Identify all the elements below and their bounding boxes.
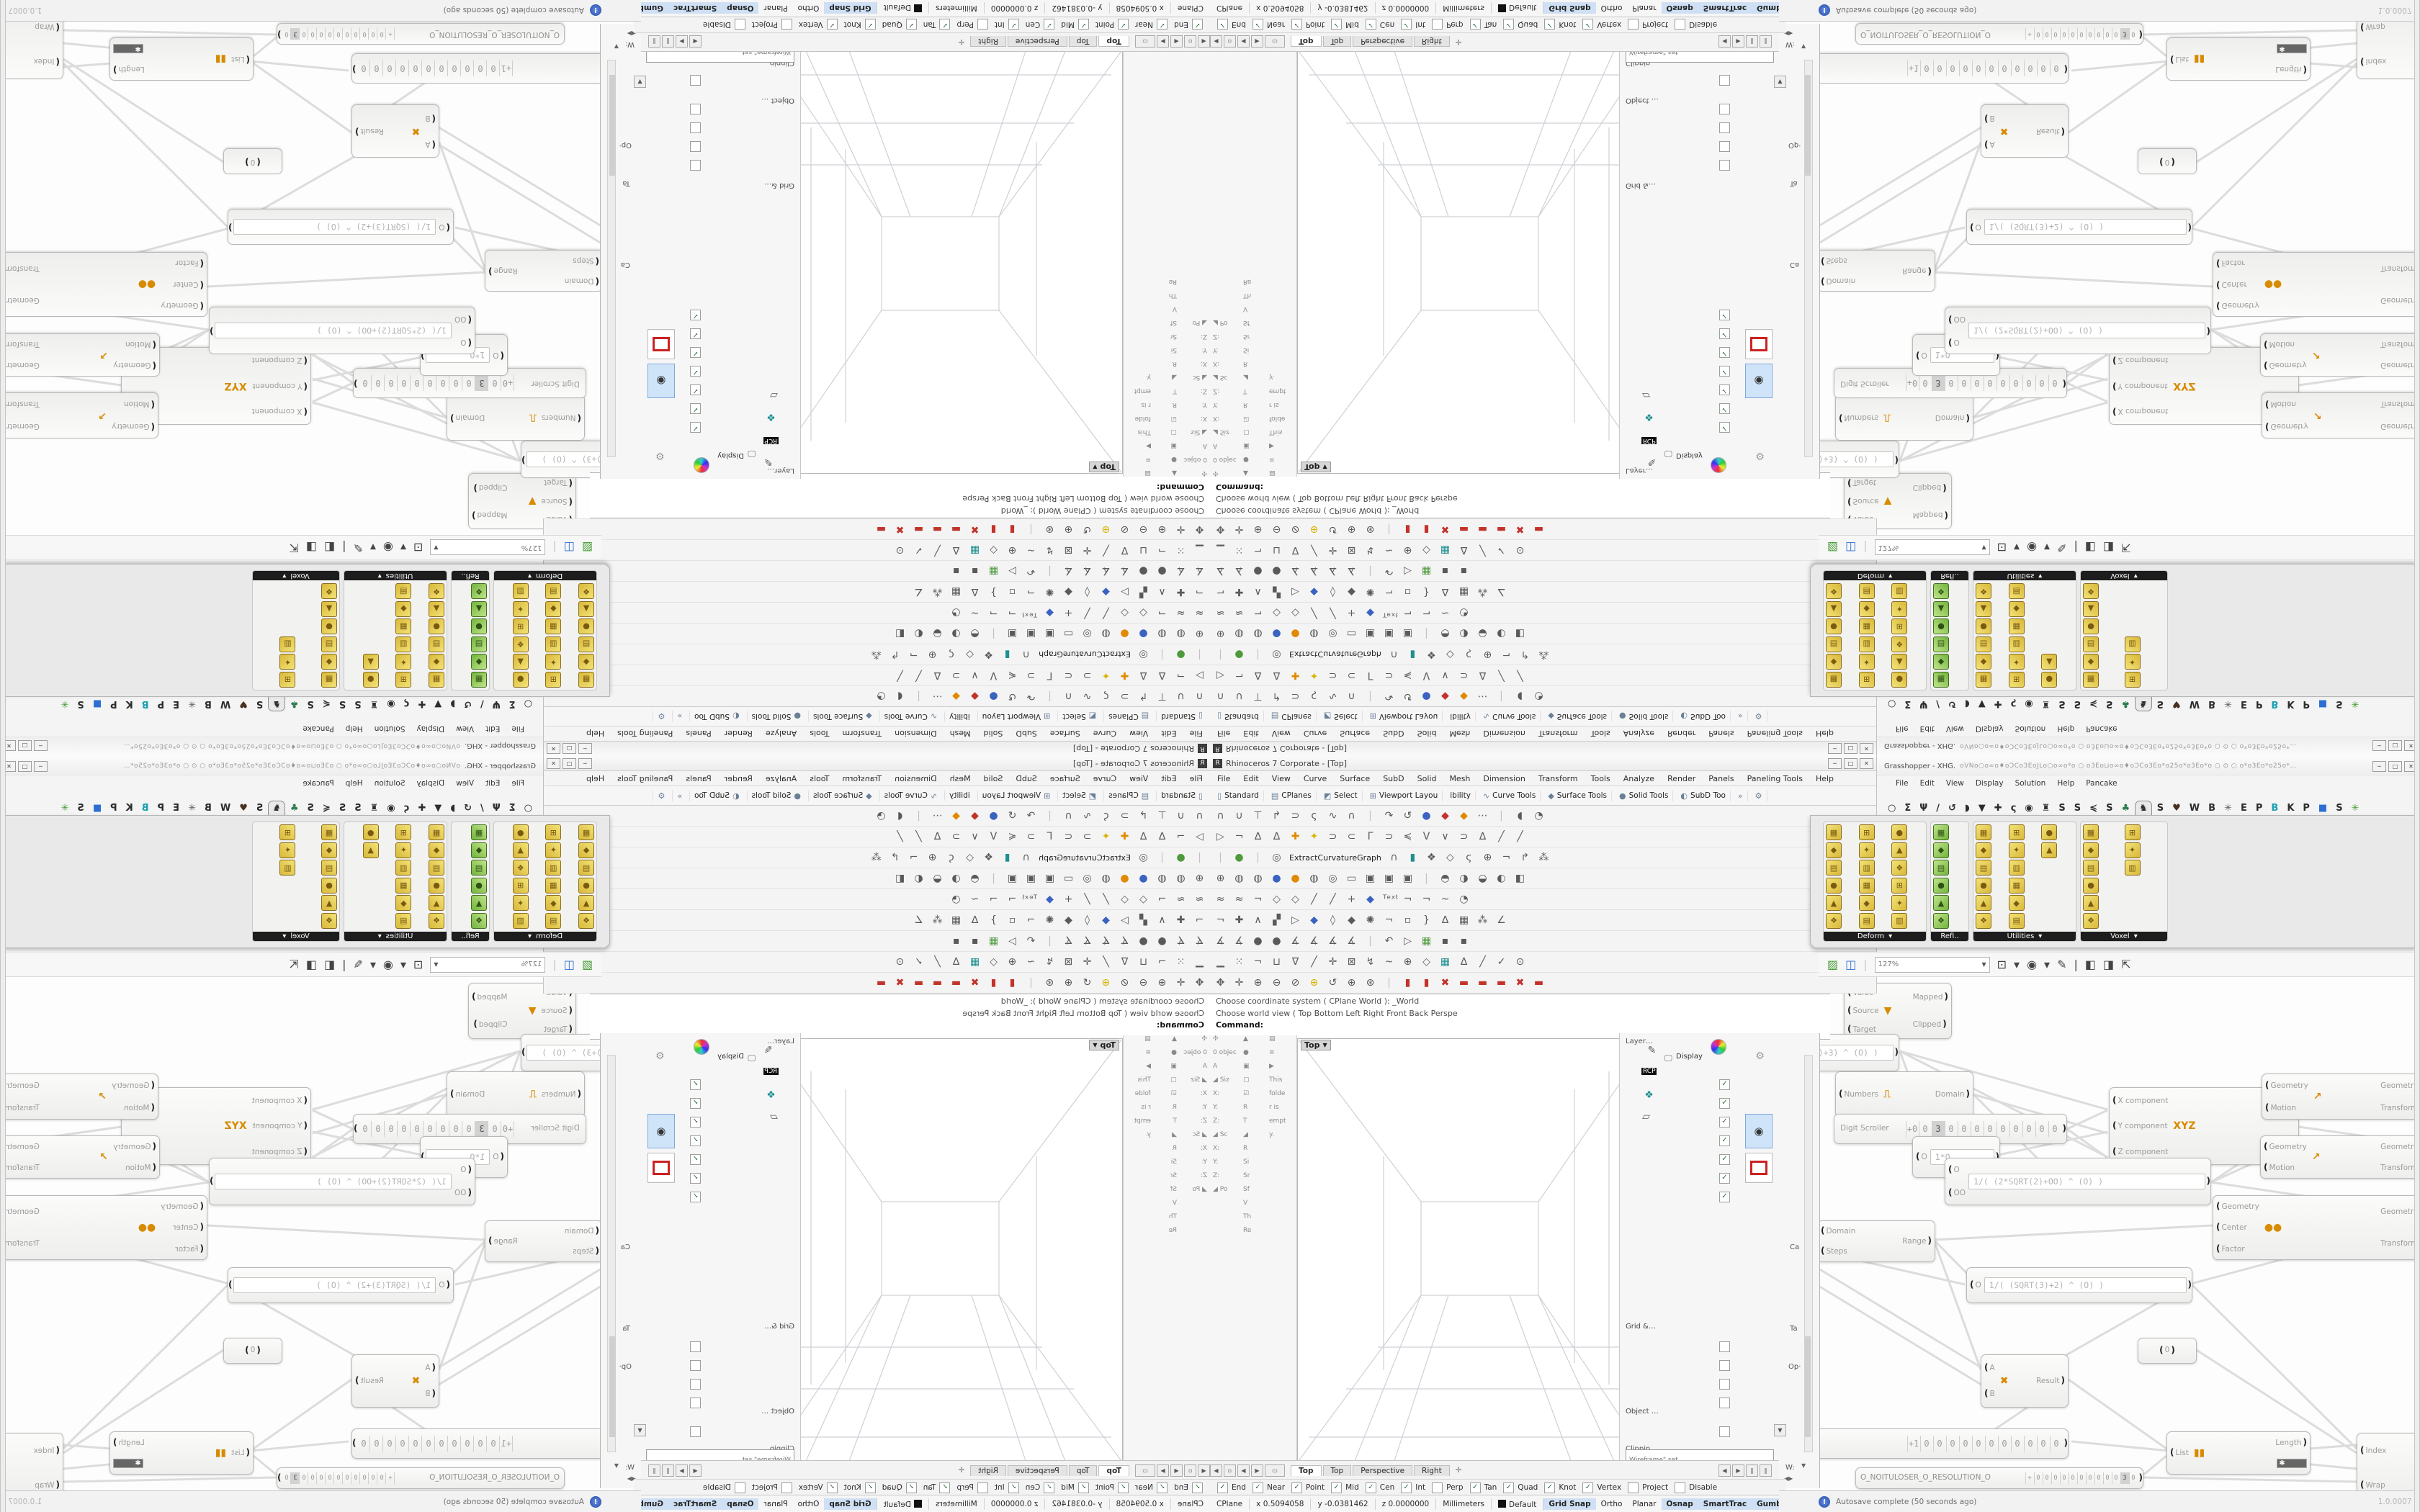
digit-cell[interactable]: 0 — [1919, 375, 1932, 391]
gh-tab[interactable]: ○ — [521, 697, 536, 711]
component-icon[interactable]: ▤ — [545, 584, 561, 600]
rhino-toolbar-tab[interactable]: ibility — [1446, 791, 1476, 801]
new-viewport-tab-button[interactable]: ✛ — [959, 37, 965, 46]
component-icon[interactable]: ▦ — [2009, 619, 2025, 635]
gh-tab[interactable]: ✳ — [58, 697, 73, 711]
canvas-toolbar-icon[interactable]: ◨ — [2103, 958, 2114, 971]
toolbar-icon[interactable]: ∡ — [1214, 565, 1227, 577]
component-icon[interactable]: ● — [578, 878, 594, 894]
rhino-menu-tools[interactable]: Tools — [1590, 729, 1612, 739]
toolbar-icon[interactable]: ▭ — [1062, 628, 1075, 639]
toolbar-icon[interactable]: ⋯ — [1476, 690, 1489, 702]
gh-node-domsteps[interactable]: DomainStepsRange — [1817, 1220, 1935, 1262]
digit-cell[interactable]: +0 — [1906, 375, 1919, 391]
toolbar-icon[interactable]: ≈ — [1175, 607, 1187, 618]
minimize-button[interactable]: ─ — [2372, 741, 2386, 752]
expand-button[interactable]: ✱ — [113, 44, 143, 53]
toolbar-icon[interactable]: ⊖ — [1137, 977, 1149, 989]
component-icon[interactable]: ● — [363, 824, 379, 840]
rhino-toolbar-tab[interactable]: ⚙ — [1751, 791, 1767, 801]
rhino-menu-tools[interactable]: Tools — [1590, 773, 1612, 784]
toolbar-icon[interactable]: ∡ — [1289, 935, 1301, 947]
tab-scroll-blank-button[interactable]: ▫ — [1184, 1464, 1196, 1477]
gh-menu-solution[interactable]: Solution — [2015, 724, 2046, 733]
osnap-checkbox-quad[interactable]: ✓ — [906, 1482, 917, 1493]
toolbar-icon[interactable]: ∩ — [1345, 690, 1358, 702]
digit-cell[interactable]: 0 — [383, 1436, 396, 1452]
digit-cell[interactable]: 0 — [423, 1121, 436, 1137]
toolbar-icon[interactable]: ✚ — [1289, 670, 1301, 681]
toolbar-icon[interactable]: ✓ — [1495, 544, 1507, 556]
toolbar-icon[interactable]: ∆ — [1270, 831, 1283, 842]
toolbar-icon[interactable]: ⁂ — [1476, 586, 1489, 598]
toolbar-icon[interactable]: ◧ — [1514, 873, 1526, 884]
rhino-menu-view[interactable]: View — [1270, 729, 1292, 739]
component-icon[interactable]: ▲ — [578, 895, 594, 911]
gh-node-move[interactable]: GeometryMotion↗GeometryTransform — [2262, 392, 2420, 438]
toolbar-icon[interactable]: ∡ — [1100, 565, 1112, 577]
rcp-icon[interactable]: RCP — [763, 437, 779, 444]
component-icon[interactable]: ✦ — [545, 842, 561, 858]
toolbar-icon[interactable]: ▪ — [969, 565, 981, 577]
minimize-button[interactable]: ─ — [34, 761, 48, 772]
gh-tab[interactable]: S — [2332, 697, 2346, 711]
canvas-toolbar-icon[interactable]: ▾ — [2044, 541, 2050, 554]
display-panel-title[interactable]: Display — [1676, 451, 1703, 459]
toolbar-icon[interactable]: ◧ — [1514, 628, 1526, 639]
pane-split-button[interactable]: ‖ — [1746, 1464, 1758, 1477]
toolbar-icon[interactable]: ▬ — [950, 523, 962, 535]
gh-node-move[interactable]: GeometryMotion↗GeometryTransform — [0, 392, 158, 438]
canvas-toolbar-icon[interactable]: ⊡ — [413, 541, 423, 554]
toolbar-icon[interactable]: ● — [987, 810, 1000, 822]
gh-tab[interactable]: ♥ — [2169, 801, 2184, 815]
toolbar-icon[interactable]: ◔ — [875, 690, 887, 702]
gh-tab[interactable]: ✳ — [58, 801, 73, 815]
digit-cell-selected[interactable]: 3 — [1932, 375, 1945, 391]
component-icon[interactable]: ▥ — [1891, 584, 1907, 600]
toolbar-icon[interactable]: ⊤ — [1156, 690, 1168, 702]
component-icon[interactable]: ▥ — [280, 860, 296, 876]
toolbar-icon[interactable]: + — [1062, 894, 1075, 905]
gh-tab[interactable]: E — [169, 801, 183, 815]
toolbar-icon[interactable]: ∇ — [1289, 544, 1301, 556]
toolbar-icon[interactable]: ⊕ — [1482, 852, 1494, 863]
toolbar-icon[interactable]: ╱ — [913, 670, 925, 681]
toolbar-icon[interactable]: ~ — [1383, 544, 1395, 556]
checkbox[interactable]: ✓ — [1719, 423, 1730, 433]
toolbar-icon[interactable]: ⊛ — [1364, 523, 1376, 535]
osnap-checkbox-perp[interactable] — [1432, 1482, 1443, 1493]
toolbar-icon[interactable]: ◆ — [1458, 690, 1470, 702]
rhino-menu-solid[interactable]: Solid — [1416, 773, 1438, 784]
checkbox[interactable] — [1719, 161, 1730, 171]
rhino-menu-panels[interactable]: Panels — [1707, 773, 1735, 784]
toolbar-icon[interactable]: ◆ — [1458, 810, 1470, 822]
toolbar-icon[interactable]: ∩ — [1020, 649, 1032, 660]
rhino-toolbar-tab[interactable]: ▯Standard — [1213, 791, 1264, 801]
canvas-toolbar-icon[interactable]: ▾ — [400, 958, 406, 971]
toolbar-icon[interactable]: ¬ — [1233, 831, 1245, 842]
gh-node-expr3[interactable]: O1/( (SQRT(3)+2) ^ (O) ) — [228, 209, 454, 245]
toolbar-icon[interactable]: ≈ — [1233, 894, 1245, 905]
toolbar-icon[interactable]: ╱ — [1476, 544, 1489, 556]
toolbar-icon[interactable]: ▭ — [1345, 873, 1358, 884]
gh-menu-edit[interactable]: Edit — [485, 779, 500, 788]
gh-tab[interactable]: P — [2252, 801, 2267, 815]
checkbox[interactable]: ✓ — [1719, 1079, 1730, 1090]
toolbar-icon[interactable]: ∇ — [1289, 956, 1301, 968]
status-toggle-grid-snap[interactable]: Grid Snap — [1543, 1498, 1595, 1510]
pencil-icon[interactable]: ✎ — [762, 1045, 774, 1056]
component-icon[interactable]: ▥ — [545, 636, 561, 652]
toolbar-icon[interactable]: ⊂ — [1345, 831, 1358, 842]
toolbar-icon[interactable]: ● — [1137, 873, 1149, 884]
toolbar-icon[interactable]: ⊖ — [1270, 523, 1283, 535]
digit-cell[interactable]: 0 — [462, 1121, 475, 1137]
toolbar-icon[interactable]: ✛ — [1327, 544, 1339, 556]
toolbar-icon[interactable]: ✚ — [1233, 586, 1245, 598]
zoom-level-dropdown[interactable]: 127% ▼ — [430, 540, 545, 556]
gh-menu-solution[interactable]: Solution — [375, 724, 405, 733]
canvas-toolbar-icon[interactable]: ◧ — [324, 541, 335, 554]
digit-cell[interactable]: 0 — [2094, 28, 2103, 40]
component-icon[interactable]: ▲ — [471, 601, 487, 617]
digit-cell[interactable]: 0 — [383, 60, 396, 76]
toolbar-icon[interactable]: ⊛ — [1044, 523, 1056, 535]
toolbar-icon[interactable]: ≼ — [1006, 670, 1018, 681]
toolbar-icon[interactable]: ∡ — [1081, 935, 1093, 947]
toolbar-icon[interactable]: ¬ — [1025, 586, 1037, 598]
toolbar-icon[interactable]: ↯ — [1044, 956, 1056, 968]
toolbar-icon[interactable]: ◊ — [1081, 586, 1093, 598]
object-section-header[interactable]: Object … — [761, 96, 794, 104]
toolbar-icon[interactable]: ∨ — [1439, 831, 1451, 842]
toolbar-icon[interactable]: ↺ — [1327, 977, 1339, 989]
toolbar-icon[interactable]: ∠ — [1495, 586, 1507, 598]
component-icon[interactable]: ⊞ — [2009, 672, 2025, 688]
rhino-menu-subd[interactable]: SubD — [1014, 729, 1038, 739]
toolbar-icon[interactable]: ¬ — [1383, 586, 1395, 598]
gh-tab[interactable]: ♣ — [287, 697, 302, 711]
toolbar-icon[interactable]: ◇ — [964, 852, 976, 863]
digit-cell[interactable]: 0 — [423, 375, 436, 391]
toolbar-icon[interactable]: ⊠ — [1062, 956, 1075, 968]
osnap-checkbox-vertex[interactable]: ✓ — [1582, 19, 1593, 30]
gh-tab[interactable]: S — [73, 697, 87, 711]
gh-tab[interactable]: S — [2055, 697, 2069, 711]
gh-menu-help[interactable]: Help — [2057, 724, 2074, 733]
toolbar-icon[interactable]: ◆ — [1439, 810, 1451, 822]
toolbar-icon[interactable]: ◆ — [1044, 894, 1056, 905]
close-button[interactable]: ✕ — [547, 744, 560, 755]
toolbar-icon[interactable]: ◆ — [1345, 586, 1358, 598]
toolbar-icon[interactable]: ▷ — [1289, 914, 1301, 926]
gh-node-expr2[interactable]: OOO1/( (2*SQRT(2)+OO) ^ (O) ) — [1945, 307, 2211, 354]
rhino-command-area[interactable]: Choose coordinate system ( CPlane World … — [1210, 472, 1830, 518]
pane-left-button[interactable]: ◀ — [1718, 36, 1731, 48]
object-section-header[interactable]: Object … — [1626, 1408, 1659, 1416]
gh-menu-edit[interactable]: Edit — [1920, 724, 1935, 733]
color-wheel-icon[interactable] — [694, 457, 709, 473]
component-icon[interactable]: ▤ — [321, 636, 337, 652]
toolbar-icon[interactable]: ⊂ — [1345, 670, 1358, 681]
color-wheel-icon[interactable] — [694, 1039, 709, 1055]
pane-right-button[interactable]: ▶ — [1732, 1464, 1744, 1477]
toolbar-icon[interactable]: ✚ — [1119, 670, 1131, 681]
digit-cell[interactable]: 0 — [398, 375, 411, 391]
digit-cell[interactable]: 0 — [357, 60, 370, 76]
toolbar-icon[interactable]: ◇ — [1444, 852, 1456, 863]
component-icon[interactable]: ▲ — [429, 895, 444, 911]
gh-node-numdom[interactable]: Numbers⎍Domain — [1835, 395, 1973, 441]
digit-cell[interactable]: 0 — [2011, 1436, 2024, 1452]
component-icon[interactable]: ❖ — [1933, 584, 1949, 600]
toolbar-icon[interactable]: ⋯ — [931, 690, 944, 702]
toolbar-icon[interactable]: ▞ — [1270, 914, 1283, 926]
toolbar-icon[interactable]: ╱ — [1100, 894, 1112, 905]
preview-eye-icon[interactable]: ◉ — [2027, 958, 2037, 971]
component-icon[interactable]: ● — [321, 878, 337, 894]
toolbar-icon[interactable]: ¬ — [1214, 586, 1227, 598]
panel-scrollbar[interactable] — [1804, 60, 1813, 457]
toolbar-icon[interactable]: ✛ — [1175, 523, 1187, 535]
rhino-menu-help[interactable]: Help — [1814, 773, 1835, 784]
component-icon[interactable]: ❖ — [2083, 584, 2099, 600]
toolbar-icon[interactable]: ◍ — [1175, 628, 1187, 639]
toolbar-icon[interactable]: ◖ — [1514, 690, 1526, 702]
digit-cell[interactable]: 0 — [370, 1436, 383, 1452]
toolbar-icon[interactable]: ⊘ — [1119, 523, 1131, 535]
gh-node-expr2[interactable]: OOO1/( (2*SQRT(2)+OO) ^ (O) ) — [209, 307, 475, 354]
canvas-toolbar-icon[interactable]: ▾ — [2014, 958, 2020, 971]
gh-menu-pancake[interactable]: Pancake — [2086, 779, 2117, 788]
component-icon[interactable]: ✦ — [2009, 654, 2025, 670]
rhino-left-panel[interactable]: ✣0 objecA◢ SizX:Y:Z:◢ ScX:Y:Z:◢ Po ▲●▣▢☑… — [1210, 1035, 1297, 1490]
toolbar-icon[interactable]: ● — [1420, 810, 1433, 822]
osnap-checkbox-end[interactable]: ✓ — [1217, 1482, 1228, 1493]
toolbar-icon[interactable]: ◆ — [1062, 586, 1075, 598]
canvas-toolbar-icon[interactable]: ▾ — [370, 958, 376, 971]
toolbar-icon[interactable]: ● — [1137, 565, 1149, 577]
document-icon[interactable]: ▱ — [1640, 1111, 1652, 1122]
toolbar-icon[interactable]: ▁ — [1214, 544, 1227, 556]
red-pen-icon[interactable]: ✎ — [354, 541, 363, 554]
canvas-toolbar-icon[interactable]: ◧ — [2085, 541, 2096, 554]
digit-cell[interactable]: 0 — [317, 1472, 326, 1484]
osnap-checkbox-cen[interactable]: ✓ — [1366, 1482, 1376, 1493]
toolbar-icon[interactable]: ● — [1137, 628, 1149, 639]
pane-split-button[interactable]: ‖ — [1760, 1464, 1772, 1477]
viewport-tab-top[interactable]: Top — [1099, 1465, 1130, 1476]
digit-cell-selected[interactable]: 3 — [2120, 1472, 2129, 1484]
digit-cell[interactable]: 0 — [1972, 60, 1985, 76]
rhino-toolbar-tab[interactable]: ◩Select — [1057, 791, 1101, 801]
maximize-button[interactable]: □ — [563, 744, 576, 755]
component-icon[interactable]: ▦ — [321, 672, 337, 688]
toolbar-icon[interactable]: ↷ — [1025, 810, 1037, 822]
toolbar-icon[interactable]: ╱ — [894, 670, 906, 681]
component-icon[interactable]: ▥ — [513, 913, 529, 929]
osnap-checkbox-quad[interactable]: ✓ — [1503, 19, 1514, 30]
toolbar-icon[interactable]: ⊕ — [1193, 628, 1206, 639]
rhino-menu-tools[interactable]: Tools — [808, 729, 830, 739]
w-dropdown-label[interactable]: W: — [625, 1464, 635, 1472]
digit-cell[interactable]: 0 — [2069, 1472, 2077, 1484]
checkbox[interactable]: ✓ — [690, 348, 701, 359]
gh-node-ds2[interactable]: +100000000000 — [1785, 53, 2069, 84]
checkbox[interactable]: ✓ — [690, 385, 701, 396]
gh-tab[interactable]: S — [253, 801, 266, 815]
checkbox[interactable] — [1719, 1360, 1730, 1371]
toolbar-icon[interactable]: ● — [1119, 873, 1131, 884]
gh-menu-display[interactable]: Display — [1976, 724, 2004, 733]
toolbar-icon[interactable]: ¬ — [1252, 544, 1264, 556]
save-file-icon[interactable]: ◫ — [1845, 541, 1856, 554]
osnap-checkbox-tan[interactable]: ✓ — [939, 1482, 950, 1493]
rhino-toolbar-tab[interactable]: ◐SubD Too — [1676, 711, 1731, 722]
toolbar-icon[interactable]: ∧ — [1156, 586, 1168, 598]
checkbox[interactable] — [1719, 123, 1730, 134]
panel-scrollbar[interactable] — [607, 60, 616, 457]
toolbar-icon[interactable]: ◆ — [1364, 607, 1376, 618]
gh-tab[interactable]: S — [2071, 697, 2084, 711]
digit-cell[interactable]: +0 — [501, 375, 514, 391]
command-prompt[interactable]: Command: — [596, 1020, 1204, 1032]
toolbar-icon[interactable]: ς — [1463, 649, 1475, 660]
osnap-checkbox-mid[interactable]: ✓ — [1331, 1482, 1342, 1493]
toolbar-icon[interactable]: ◍ — [1252, 873, 1264, 884]
toolbar-icon[interactable]: ▷ — [1119, 586, 1131, 598]
osnap-checkbox-perp[interactable] — [977, 1482, 988, 1493]
component-icon[interactable]: ▲ — [1891, 654, 1907, 670]
osnap-checkbox-near[interactable]: ✓ — [1252, 1482, 1263, 1493]
viewport-tab-top[interactable]: Top — [1291, 37, 1322, 48]
toolbar-icon[interactable]: ∡ — [1100, 935, 1112, 947]
digit-cell[interactable]: 0 — [396, 1436, 409, 1452]
toolbar-icon[interactable]: ∿ — [1081, 690, 1093, 702]
osnap-checkbox-knot[interactable]: ✓ — [1544, 1482, 1555, 1493]
rhino-left-panel[interactable]: ✣0 objecA◢ SizX:Y:Z:◢ ScX:Y:Z:◢ Po ▲●▣▢☑… — [1123, 22, 1210, 477]
rhino-menu-dimension[interactable]: Dimension — [1482, 773, 1526, 784]
digit-cell[interactable]: 0 — [343, 1472, 351, 1484]
canvas-toolbar-icon[interactable]: ◨ — [306, 958, 317, 971]
maximize-button[interactable]: □ — [18, 741, 32, 752]
toolbar-icon[interactable]: ∡ — [1081, 565, 1093, 577]
toolbar-icon[interactable]: ⊖ — [1270, 977, 1283, 989]
toolbar-icon[interactable]: V — [987, 831, 1000, 842]
checkbox[interactable] — [1719, 1379, 1730, 1390]
document-icon[interactable]: ▱ — [1640, 390, 1652, 401]
gh-tab[interactable]: B — [201, 801, 215, 815]
component-icon[interactable]: ◆ — [1933, 842, 1949, 858]
toolbar-icon[interactable]: ▬ — [931, 523, 944, 535]
toolbar-icon[interactable]: ς — [1308, 810, 1320, 822]
component-icon[interactable]: ● — [363, 672, 379, 688]
chevron-down-icon[interactable]: ▼ — [614, 1462, 619, 1469]
toolbar-icon[interactable]: ∿ — [1327, 810, 1339, 822]
checkbox[interactable] — [690, 104, 701, 115]
digit-cell[interactable]: 0 — [359, 375, 372, 391]
component-icon[interactable]: ✦ — [2009, 842, 2025, 858]
component-icon[interactable]: ▲ — [429, 601, 444, 617]
toolbar-icon[interactable]: Γ — [1364, 831, 1376, 842]
checkbox[interactable]: ✓ — [1719, 1135, 1730, 1146]
component-icon[interactable]: ● — [471, 878, 487, 894]
component-icon[interactable]: ◆ — [429, 842, 444, 858]
toolbar-icon[interactable]: ▮ — [1006, 523, 1018, 535]
digit-cell-selected[interactable]: 3 — [1932, 1121, 1945, 1137]
rhino-left-panel[interactable]: ✣0 objecA◢ SizX:Y:Z:◢ ScX:Y:Z:◢ Po ▲●▣▢☑… — [1123, 1035, 1210, 1490]
toolbar-icon[interactable]: ▬ — [1533, 977, 1545, 989]
toolbar-icon[interactable]: ▬ — [913, 977, 925, 989]
gh-menu-file[interactable]: File — [1896, 724, 1909, 733]
digit-cell[interactable]: 0 — [1996, 1121, 2009, 1137]
toolbar-icon[interactable]: ▬ — [931, 977, 944, 989]
component-icon[interactable]: ▲ — [363, 654, 379, 670]
gh-tab[interactable]: ≼ — [319, 801, 334, 815]
toolbar-icon[interactable]: ⊃ — [950, 831, 962, 842]
toolbar-icon[interactable]: ● — [1270, 873, 1283, 884]
rhino-toolbar-tab[interactable]: ⊞Viewport Layou — [1366, 711, 1443, 722]
toolbar-icon[interactable]: ✦ — [1308, 670, 1320, 681]
digit-cell[interactable]: 0 — [372, 1121, 385, 1137]
checkbox[interactable]: ✓ — [1719, 385, 1730, 396]
toolbar-icon[interactable]: ↯ — [1044, 544, 1056, 556]
gh-tab[interactable]: ∕ — [477, 801, 488, 815]
checkbox[interactable] — [690, 1341, 701, 1352]
toolbar-icon[interactable]: ↺ — [1081, 977, 1093, 989]
toolbar-icon[interactable]: ∆ — [1252, 670, 1264, 681]
rhino-menu-render[interactable]: Render — [723, 773, 754, 784]
component-icon[interactable]: ✦ — [280, 654, 296, 670]
gh-menu-display[interactable]: Display — [416, 724, 444, 733]
checkbox[interactable] — [690, 1426, 701, 1437]
toolbar-icon[interactable]: ● — [1175, 649, 1187, 660]
checkbox[interactable]: ✓ — [690, 310, 701, 321]
digit-cell[interactable]: 0 — [2034, 1472, 2043, 1484]
rhino-right-panels[interactable]: Layer… ✎ RCP ❖ ▱ 🖵 Display ⚙ ✓✓✓✓✓✓✓ ◉ G… — [600, 1033, 801, 1488]
layer-panel-header[interactable]: Layer… — [1626, 467, 1653, 474]
red-frame-icon[interactable] — [1745, 1153, 1773, 1183]
canvas-toolbar-icon[interactable]: ◨ — [306, 541, 317, 554]
component-icon[interactable]: ✦ — [395, 654, 411, 670]
rhino-viewport[interactable]: Top ▼ — [768, 1038, 1123, 1463]
digit-cell[interactable]: 0 — [474, 60, 487, 76]
checkbox[interactable]: ✓ — [1719, 1117, 1730, 1128]
canvas-toolbar-icon[interactable]: ⇱ — [289, 541, 298, 554]
toolbar-icon[interactable]: ▮ — [1407, 852, 1419, 863]
extract-curvature-graph-button[interactable]: ExtractCurvatureGraph — [1289, 650, 1381, 660]
digit-cell[interactable]: 0 — [2050, 60, 2063, 76]
toolbar-icon[interactable]: ▮ — [1001, 852, 1013, 863]
status-toggle-smarttrac[interactable]: SmartTrac — [1698, 2, 1752, 14]
toolbar-icon[interactable]: ∇ — [1119, 544, 1131, 556]
toolbar-icon[interactable]: ∡ — [1233, 935, 1245, 947]
gh-node-numdom[interactable]: Numbers⎍Domain — [447, 395, 585, 441]
rhino-menu-file[interactable]: File — [1188, 729, 1204, 739]
toolbar-icon[interactable]: ▷ — [1193, 831, 1206, 842]
toolbar-icon[interactable]: ∪ — [1175, 690, 1187, 702]
osnap-checkbox-point[interactable]: ✓ — [1291, 1482, 1302, 1493]
toolbar-icon[interactable]: ¬ — [1402, 894, 1414, 905]
rhino-toolbar-tab[interactable]: ◩Select — [1057, 711, 1101, 722]
checkbox[interactable] — [1719, 76, 1730, 86]
toolbar-icon[interactable]: ◖ — [894, 690, 906, 702]
toolbar-icon[interactable]: ⊔ — [1270, 956, 1283, 968]
toolbar-icon[interactable]: ∿ — [1327, 690, 1339, 702]
pane-left-button[interactable]: ◀ — [689, 36, 702, 48]
